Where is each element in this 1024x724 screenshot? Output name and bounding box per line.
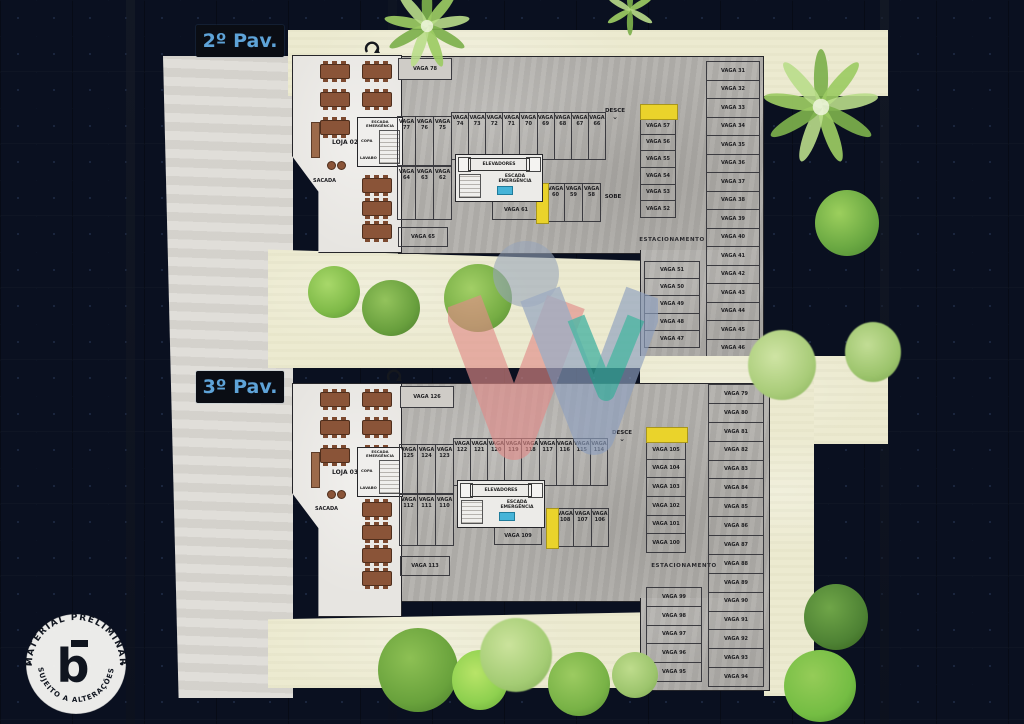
stairs [379, 460, 400, 494]
parking-stall: VAGA 71 [502, 112, 520, 160]
parking-stall: VAGA 54 [640, 167, 676, 185]
parking-stall: VAGA 61 [492, 200, 540, 220]
tree [815, 190, 879, 256]
parking-stall: VAGA 67 [571, 112, 589, 160]
parking-stall: VAGA 55 [640, 150, 676, 168]
parking-stall: VAGA 68 [554, 112, 572, 160]
lavabo-label: LAVABO [360, 156, 377, 160]
parking-stall: VAGA 58 [582, 183, 601, 222]
palm-tree [762, 48, 880, 166]
parking-stall: VAGA 62 [433, 166, 452, 220]
parking-stall: VAGA 99 [646, 587, 702, 607]
north-arrow-icon [364, 40, 380, 56]
parking-stall: VAGA 109 [494, 527, 542, 545]
parking-stall: VAGA 36 [706, 154, 760, 174]
parking-stall: VAGA 106 [591, 508, 609, 547]
parking-stall: VAGA 92 [708, 629, 764, 649]
stall-row2-right: VAGA 60VAGA 59VAGA 58 [547, 183, 601, 222]
escada-label: ESCADA EMERGÊNCIA [360, 120, 400, 129]
parking-stall: VAGA 125 [399, 444, 418, 494]
stall-mid-column: VAGA 57VAGA 56VAGA 55VAGA 54VAGA 53VAGA … [640, 118, 676, 218]
table [362, 548, 392, 563]
stall-row1-right: VAGA 74VAGA 73VAGA 72VAGA 71VAGA 70VAGA … [452, 112, 606, 160]
parking-stall: VAGA 94 [708, 667, 764, 687]
parking-stall: VAGA 41 [706, 246, 760, 266]
stall-row2-left: VAGA 112VAGA 111VAGA 110 [400, 494, 454, 546]
table [362, 201, 392, 216]
lavabo-label: LAVABO [360, 486, 377, 490]
parking-stall: VAGA 38 [706, 191, 760, 211]
escada-emergencia-label: ESCADA EMERGÊNCIA [494, 500, 540, 511]
parking-stall: VAGA 56 [640, 134, 676, 152]
parking-stall: VAGA 69 [537, 112, 555, 160]
parking-stall: VAGA 126 [400, 386, 454, 408]
parking-stall: VAGA 32 [706, 80, 760, 100]
landscape-right-column [764, 356, 814, 696]
elevator-core: ELEVADORES ESCADA EMERGÊNCIA [455, 154, 543, 202]
ramp [546, 508, 559, 549]
copa-label: COPA [361, 469, 372, 473]
parking-stall: VAGA 89 [708, 573, 764, 593]
emergency-stairs [459, 174, 481, 198]
stall-row1-left: VAGA 125VAGA 124VAGA 123 [400, 444, 454, 494]
loja-label: LOJA 03 [332, 469, 358, 476]
parking-stall: VAGA 84 [708, 478, 764, 498]
parking-stall: VAGA 96 [646, 643, 702, 663]
parking-stall: VAGA 37 [706, 172, 760, 192]
stamp-letter: b [57, 639, 90, 693]
emergency-stairs [461, 500, 483, 524]
parking-stall: VAGA 52 [640, 200, 676, 218]
table [362, 525, 392, 540]
tree [804, 584, 868, 650]
desce-label: DESCE⌄ [598, 109, 632, 119]
escada-emergencia-label: ESCADA EMERGÊNCIA [492, 174, 538, 185]
arrow-down-icon: ⌄ [598, 115, 632, 119]
parking-stall: VAGA 44 [706, 302, 760, 322]
preliminary-stamp: MATERIAL PRELIMINAR SUJEITO A ALTERAÇÕES… [20, 604, 132, 716]
floorplan-marketing-image: { "stamp": { "top_text": "MATERIAL PRELI… [0, 0, 1024, 724]
table [320, 420, 350, 435]
counter [311, 122, 320, 158]
chair [337, 490, 346, 499]
elevadores-label: ELEVADORES [468, 158, 530, 171]
stall-row2-left: VAGA 64VAGA 63VAGA 62 [398, 166, 452, 220]
table [320, 64, 350, 79]
sacada-label: SACADA [313, 178, 336, 184]
parking-stall: VAGA 77 [397, 116, 416, 166]
floor-label-3pav: 3º Pav. [196, 371, 284, 403]
parking-stall: VAGA 107 [573, 508, 591, 547]
table [362, 92, 392, 107]
parking-stall: VAGA 103 [646, 477, 686, 497]
parking-stall: VAGA 53 [640, 184, 676, 202]
stall-row2-right: VAGA 108VAGA 107VAGA 106 [557, 508, 609, 547]
parking-stall: VAGA 43 [706, 283, 760, 303]
parking-stall: VAGA 45 [706, 320, 760, 340]
copa-label: COPA [361, 139, 372, 143]
tree [308, 266, 360, 318]
chair [327, 490, 336, 499]
parking-stall: VAGA 102 [646, 496, 686, 516]
parking-stall: VAGA 82 [708, 441, 764, 461]
parking-stall: VAGA 100 [646, 533, 686, 553]
estacionamento-label: ESTACIONAMENTO [646, 563, 722, 569]
parking-stall: VAGA 113 [400, 556, 450, 576]
sobe-text: SOBE [605, 194, 622, 200]
parking-stall: VAGA 80 [708, 403, 764, 423]
stall-right-strip: VAGA 31VAGA 32VAGA 33VAGA 34VAGA 35VAGA … [706, 62, 760, 358]
table [362, 392, 392, 407]
elevadores-label: ELEVADORES [470, 484, 532, 497]
parking-stall: VAGA 66 [588, 112, 606, 160]
door-marker [499, 512, 515, 521]
tree [378, 628, 458, 712]
north-arrow-icon [386, 368, 402, 384]
table [362, 502, 392, 517]
table [362, 571, 392, 586]
parking-stall: VAGA 85 [708, 497, 764, 517]
parking-stall: VAGA 111 [417, 494, 436, 546]
table [362, 420, 392, 435]
tree [480, 618, 552, 692]
parking-stall: VAGA 124 [417, 444, 436, 494]
stall-row1-left: VAGA 77VAGA 76VAGA 75 [398, 116, 452, 166]
tree [748, 330, 816, 400]
stall-right-strip: VAGA 79VAGA 80VAGA 81VAGA 82VAGA 83VAGA … [708, 385, 764, 687]
elevator-core: ELEVADORES ESCADA EMERGÊNCIA [457, 480, 545, 528]
stamp-letter-bar [71, 640, 88, 647]
parking-stall: VAGA 64 [397, 166, 416, 220]
palm-tree [383, 0, 471, 70]
parking-stall: VAGA 112 [399, 494, 418, 546]
table [320, 92, 350, 107]
parking-stall: VAGA 42 [706, 265, 760, 285]
parking-stall: VAGA 101 [646, 515, 686, 535]
parking-stall: VAGA 75 [433, 116, 452, 166]
watermark-logo [448, 222, 658, 472]
parking-stall: VAGA 81 [708, 422, 764, 442]
parking-stall: VAGA 97 [646, 625, 702, 645]
floor-label-2pav: 2º Pav. [196, 25, 284, 57]
parking-stall: VAGA 35 [706, 135, 760, 155]
parking-stall: VAGA 34 [706, 117, 760, 137]
tree [548, 652, 610, 716]
table [320, 392, 350, 407]
tree [784, 650, 856, 722]
parking-stall: VAGA 73 [468, 112, 486, 160]
table [362, 178, 392, 193]
parking-stall: VAGA 76 [415, 116, 434, 166]
sacada-label: SACADA [315, 506, 338, 512]
chair [337, 161, 346, 170]
tree [362, 280, 420, 336]
door-marker [497, 186, 513, 195]
table [362, 224, 392, 239]
parking-stall: VAGA 31 [706, 61, 760, 81]
ramp [640, 104, 678, 120]
table [320, 448, 350, 463]
parking-stall: VAGA 33 [706, 98, 760, 118]
parking-stall: VAGA 74 [451, 112, 469, 160]
parking-stall: VAGA 72 [485, 112, 503, 160]
parking-stall: VAGA 39 [706, 209, 760, 229]
parking-stall: VAGA 91 [708, 611, 764, 631]
table [320, 120, 350, 135]
loja-core: ESCADA EMERGÊNCIA COPA LAVABO [357, 447, 403, 497]
parking-stall: VAGA 110 [435, 494, 454, 546]
escada-label: ESCADA EMERGÊNCIA [360, 450, 400, 459]
parking-stall: VAGA 93 [708, 648, 764, 668]
parking-stall: VAGA 65 [398, 227, 448, 247]
tree [612, 652, 658, 698]
parking-stall: VAGA 86 [708, 516, 764, 536]
parking-stall: VAGA 59 [564, 183, 583, 222]
parking-stall: VAGA 90 [708, 592, 764, 612]
parking-stall: VAGA 98 [646, 606, 702, 626]
parking-stall: VAGA 40 [706, 228, 760, 248]
loja-label: LOJA 02 [332, 139, 358, 146]
sobe-label: SOBE [596, 195, 630, 201]
counter [311, 452, 320, 488]
palm-tree [604, 0, 656, 36]
parking-stall: VAGA 83 [708, 460, 764, 480]
parking-stall: VAGA 87 [708, 535, 764, 555]
parking-stall: VAGA 63 [415, 166, 434, 220]
tree [845, 322, 901, 382]
parking-stall: VAGA 70 [519, 112, 537, 160]
chair [327, 161, 336, 170]
